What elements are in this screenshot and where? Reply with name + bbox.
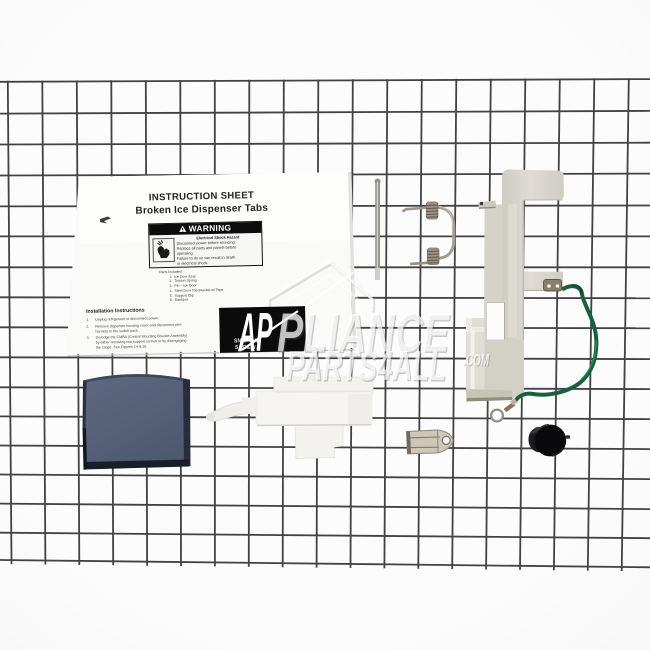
svg-text:PARTS4ALL: PARTS4ALL [286, 342, 446, 389]
svg-text:.COM: .COM [463, 352, 490, 370]
